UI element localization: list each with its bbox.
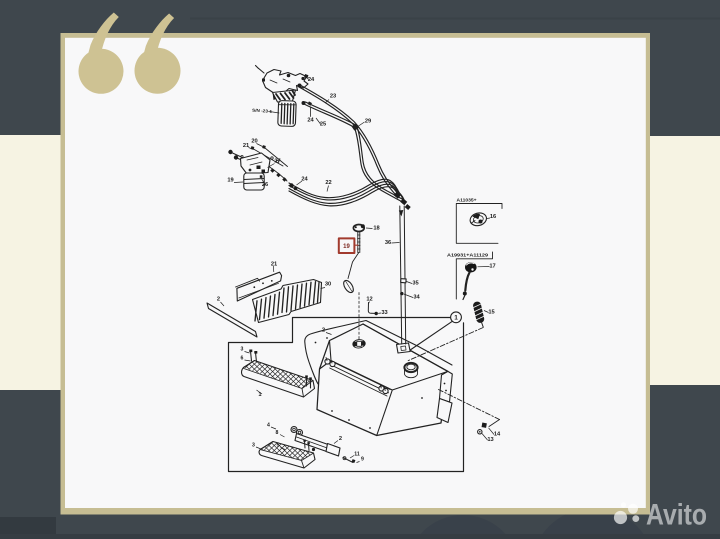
svg-text:13: 13	[487, 437, 493, 443]
svg-text:29: 29	[365, 119, 371, 125]
svg-text:16: 16	[490, 214, 496, 220]
svg-text:24: 24	[301, 177, 308, 183]
svg-text:33: 33	[381, 310, 387, 316]
svg-text:21: 21	[243, 143, 249, 149]
svg-text:5: 5	[277, 443, 280, 449]
svg-text:15: 15	[488, 310, 494, 316]
svg-text:22: 22	[325, 180, 331, 186]
svg-text:3: 3	[241, 347, 244, 353]
svg-text:25: 25	[320, 122, 326, 128]
svg-text:26: 26	[262, 182, 268, 188]
svg-text:30: 30	[325, 282, 331, 288]
svg-text:12: 12	[366, 297, 372, 303]
svg-text:9: 9	[361, 457, 364, 463]
svg-text:2: 2	[217, 297, 220, 303]
svg-text:19: 19	[227, 178, 233, 184]
svg-text:35: 35	[412, 281, 418, 287]
svg-text:36: 36	[385, 240, 391, 246]
svg-text:A19931+A11129: A19931+A11129	[447, 253, 489, 258]
svg-text:1: 1	[258, 392, 261, 398]
svg-text:21: 21	[271, 262, 277, 268]
svg-text:14: 14	[494, 432, 501, 438]
svg-text:27: 27	[274, 159, 280, 165]
svg-text:18: 18	[373, 226, 379, 232]
svg-text:24: 24	[307, 118, 314, 124]
svg-text:17: 17	[489, 264, 495, 270]
svg-text:2: 2	[322, 328, 325, 334]
svg-text:6: 6	[241, 356, 244, 362]
svg-text:23: 23	[330, 94, 336, 100]
svg-text:Avito: Avito	[646, 499, 707, 532]
svg-text:19: 19	[343, 244, 350, 250]
svg-text:A11035+: A11035+	[457, 198, 478, 203]
svg-text:4: 4	[267, 423, 270, 429]
svg-text:3: 3	[252, 443, 255, 449]
svg-text:8: 8	[276, 430, 279, 436]
svg-text:1: 1	[454, 315, 458, 322]
svg-text:34: 34	[413, 295, 420, 301]
svg-text:2: 2	[339, 436, 342, 442]
svg-text:20: 20	[251, 139, 257, 145]
svg-text:11: 11	[354, 452, 360, 458]
svg-text:24: 24	[308, 77, 315, 83]
